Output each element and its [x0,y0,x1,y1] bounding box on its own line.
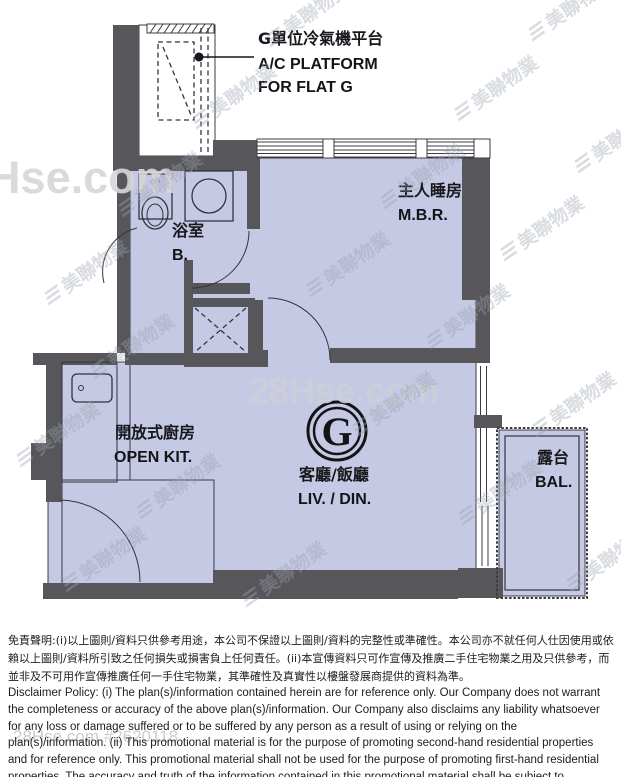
floor-plan-drawing: G G單位冷氣機平台 A/C PLATFORM FOR FLAT G 主人睡房 … [0,0,621,628]
wall [248,300,263,358]
label-bath-zh: 浴室 [172,221,204,240]
wall [247,158,260,229]
wall [213,570,458,599]
wall [462,158,490,300]
window-mullion [323,139,334,158]
wall [474,415,502,428]
label-living-zh: 客廳/飯廳 [299,465,369,484]
label-kitchen-zh: 開放式廚房 [115,423,195,442]
wall [192,283,250,294]
ac-platform-area [139,25,215,156]
wall [117,171,130,353]
ac-callout-en1: A/C PLATFORM [258,56,378,73]
disclaimer-block: 免責聲明:(i)以上圖則/資料只供參考用途，本公司不保證以上圖則/資料的完整性或… [8,632,615,777]
label-balcony-en: BAL. [535,474,572,491]
wall [31,443,48,480]
wall [184,260,193,365]
window-mullion [474,139,490,158]
label-kitchen-en: OPEN KIT. [114,449,192,466]
wall [46,362,62,502]
entry-floor-area [62,480,214,586]
wall [476,300,490,363]
wall [113,25,139,158]
floor-plan-page: G G單位冷氣機平台 A/C PLATFORM FOR FLAT G 主人睡房 … [0,0,621,777]
wall [213,140,257,157]
window-mullion [416,139,427,158]
wall [184,353,265,367]
ac-callout-zh: G單位冷氣機平台 [258,29,383,48]
flat-badge-letter: G [321,409,352,454]
wall [33,353,117,365]
label-bath-en: B. [172,247,188,264]
label-mbr-en: M.B.R. [398,207,448,224]
wall [257,350,268,367]
living-room-side-window [481,366,489,566]
wall [184,298,255,307]
disclaimer-en: Disclaimer Policy: (i) The plan(s)/infor… [8,685,615,777]
ac-platform [139,24,215,160]
ac-callout-en2: FOR FLAT G [258,79,353,96]
wall [43,583,215,599]
wall [330,348,490,363]
disclaimer-zh: 免責聲明:(i)以上圖則/資料只供參考用途，本公司不保證以上圖則/資料的完整性或… [8,632,615,685]
label-living-en: LIV. / DIN. [298,491,371,508]
label-mbr-zh: 主人睡房 [398,181,462,200]
wall [113,156,258,171]
wall [125,353,189,365]
label-balcony-zh: 露台 [537,448,569,467]
leader-dot [195,53,204,62]
